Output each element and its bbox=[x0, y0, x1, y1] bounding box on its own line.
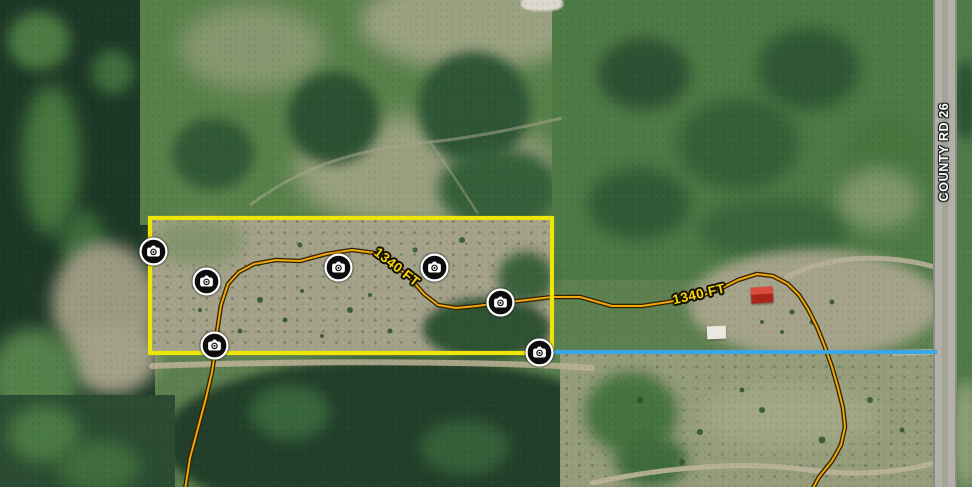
camera-photo-marker[interactable] bbox=[525, 338, 554, 367]
camera-photo-marker[interactable] bbox=[192, 267, 221, 296]
camera-icon bbox=[192, 267, 221, 296]
county-road-label: COUNTY RD 26 bbox=[937, 92, 953, 212]
map-viewport[interactable]: COUNTY RD 26 1340 FT1340 FT bbox=[0, 0, 972, 487]
camera-photo-marker[interactable] bbox=[420, 253, 449, 282]
camera-icon bbox=[486, 288, 515, 317]
camera-photo-marker[interactable] bbox=[324, 253, 353, 282]
camera-icon bbox=[324, 253, 353, 282]
camera-icon bbox=[525, 338, 554, 367]
camera-photo-marker[interactable] bbox=[486, 288, 515, 317]
trail-outline bbox=[185, 250, 845, 487]
camera-photo-marker[interactable] bbox=[200, 331, 229, 360]
camera-icon bbox=[139, 237, 168, 266]
camera-icon bbox=[420, 253, 449, 282]
camera-photo-marker[interactable] bbox=[139, 237, 168, 266]
camera-icon bbox=[200, 331, 229, 360]
trail-path bbox=[185, 250, 845, 487]
